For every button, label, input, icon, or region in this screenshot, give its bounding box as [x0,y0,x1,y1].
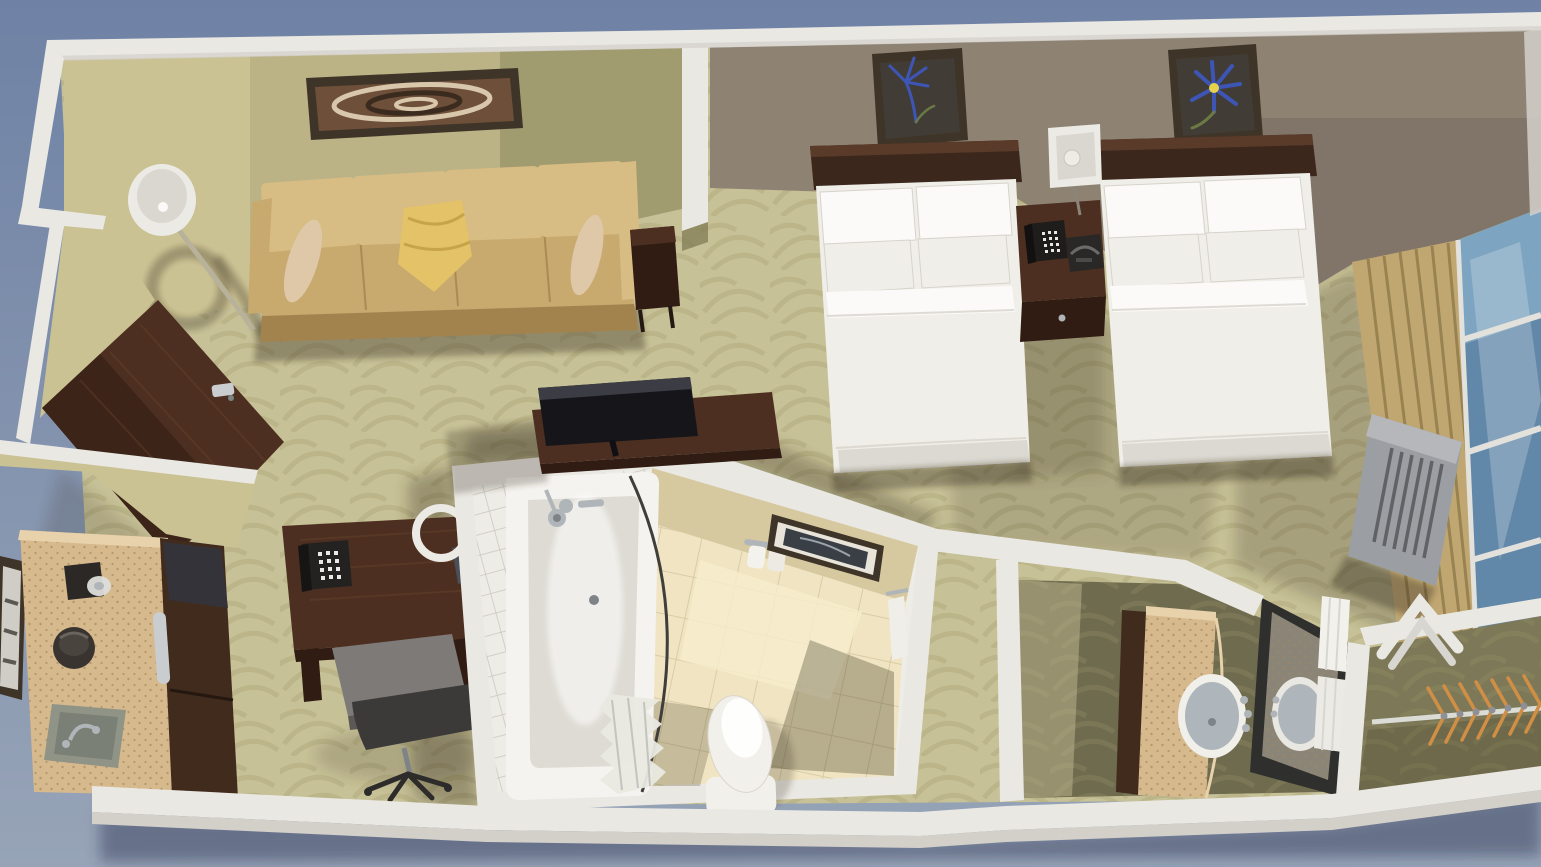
sofa [248,161,646,362]
bed-2-pillow [1104,182,1205,240]
kitchenette [0,440,258,798]
alarm-clock [1066,234,1104,272]
sofa-back-cushion [542,166,622,232]
hotel-suite-3d-floorplan [0,0,1541,867]
drawer-knob [1059,315,1066,322]
flower-art-2 [1168,44,1263,146]
bed-1-pillow [820,188,916,246]
kitchenette-wall-art [0,556,26,700]
nightstand-telephone [1024,220,1068,264]
bed-1-pillow [918,235,1010,288]
bed-2-pillow [1206,229,1304,282]
bed-1-pillow [824,240,914,294]
floorplan-render [0,0,1541,867]
nightstand [1016,200,1106,342]
living-room-wall-art [306,68,523,140]
divider-wall [682,45,708,251]
tub-drain [589,595,599,605]
ice-bucket [53,627,95,669]
bed-2-pillow [1108,234,1203,288]
microwave [163,542,228,608]
bed-1-pillow [916,183,1012,240]
bed-2-pillow [1204,177,1306,234]
desk-telephone [298,540,352,592]
flower-art-1 [872,48,968,148]
bed-1 [810,140,1032,492]
bed-2 [1094,134,1334,486]
kitchen-sink [44,704,126,768]
